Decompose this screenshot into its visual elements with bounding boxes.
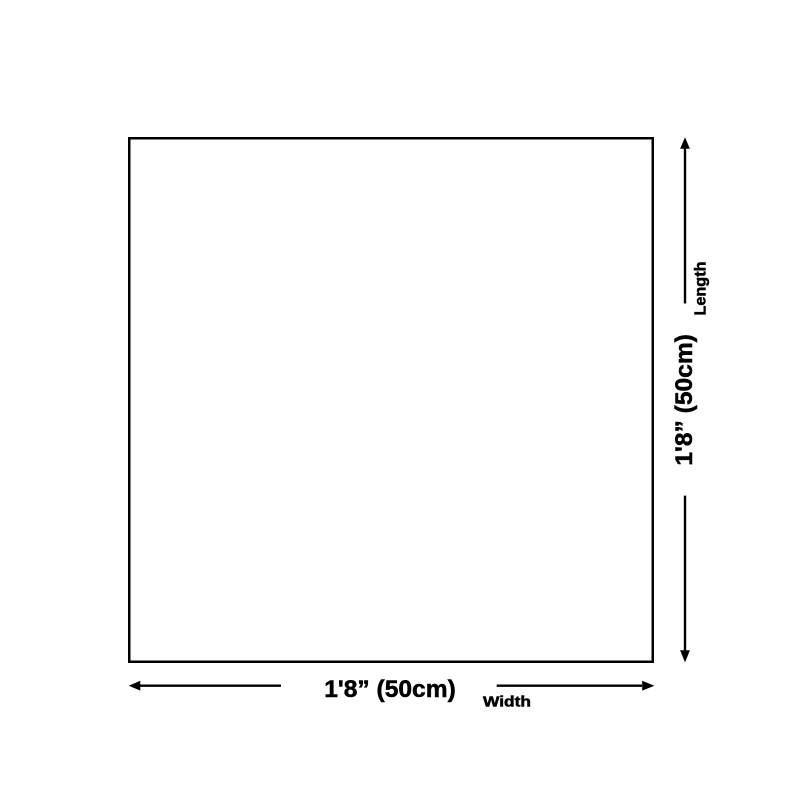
- svg-text:Length: Length: [692, 262, 709, 316]
- svg-text:1'8” (50cm): 1'8” (50cm): [324, 676, 456, 703]
- svg-text:1'8” (50cm): 1'8” (50cm): [671, 334, 698, 466]
- svg-text:Width: Width: [483, 695, 531, 711]
